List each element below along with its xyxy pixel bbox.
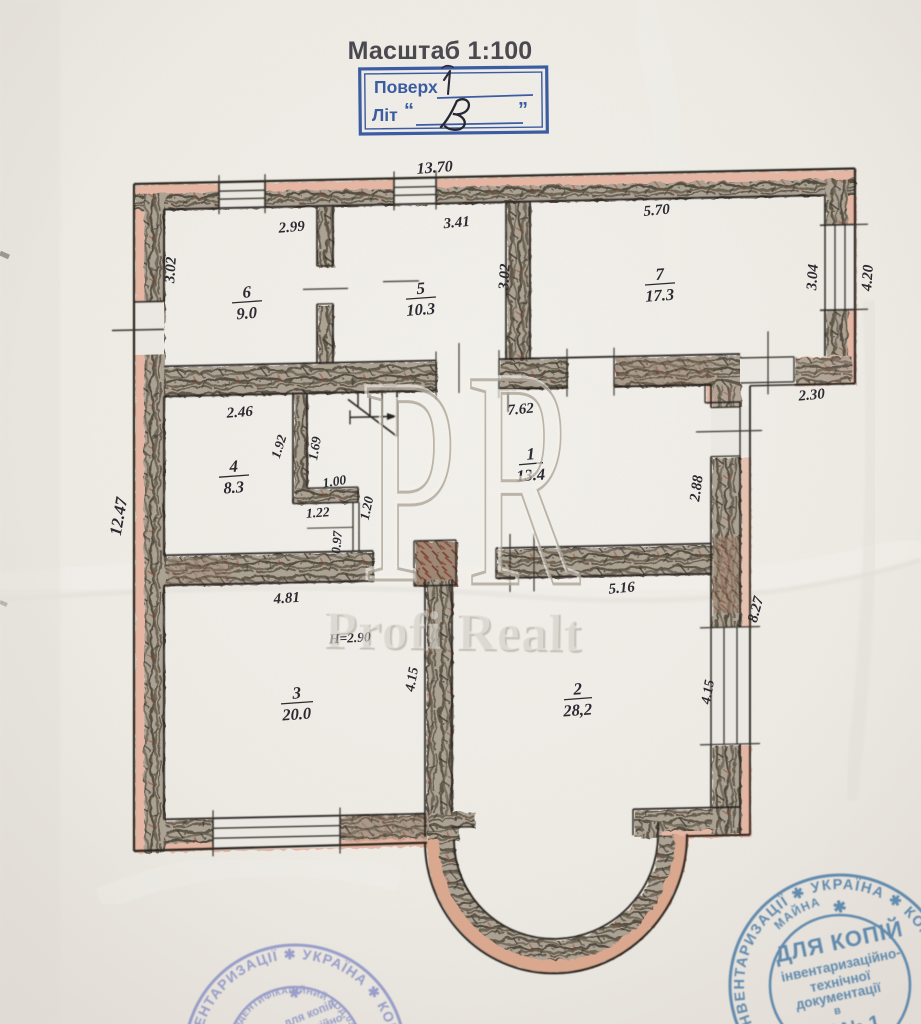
- svg-text:2.99: 2.99: [277, 218, 306, 236]
- svg-text:3.02: 3.02: [496, 263, 514, 291]
- svg-text:0.97: 0.97: [328, 530, 345, 554]
- svg-text:3.41: 3.41: [442, 214, 470, 232]
- svg-text:6: 6: [242, 282, 252, 302]
- svg-text:17.3: 17.3: [645, 285, 675, 306]
- svg-text:Літ: Літ: [372, 105, 398, 125]
- svg-text:1.22: 1.22: [306, 504, 331, 521]
- svg-text:5.70: 5.70: [643, 202, 671, 220]
- svg-text:5.16: 5.16: [608, 579, 636, 597]
- svg-text:Profi Realt: Profi Realt: [323, 599, 582, 663]
- svg-text:20.0: 20.0: [281, 703, 312, 724]
- svg-text:4.20: 4.20: [859, 264, 877, 292]
- svg-text:”: ”: [518, 99, 528, 121]
- svg-text:P: P: [363, 319, 457, 643]
- svg-text:4: 4: [228, 457, 238, 477]
- svg-text:5: 5: [416, 279, 426, 299]
- svg-text:2.30: 2.30: [797, 386, 826, 404]
- svg-text:Масштаб 1:100: Масштаб 1:100: [348, 37, 533, 65]
- svg-text:2.46: 2.46: [225, 404, 254, 422]
- svg-text:2: 2: [572, 679, 583, 699]
- svg-text:13.70: 13.70: [416, 158, 453, 178]
- svg-text:3.04: 3.04: [804, 263, 822, 291]
- svg-text:9.0: 9.0: [236, 303, 258, 323]
- svg-text:4.81: 4.81: [272, 590, 300, 608]
- svg-text:3.02: 3.02: [162, 256, 180, 284]
- svg-text:Поверх: Поверх: [374, 77, 438, 97]
- svg-text:3: 3: [291, 683, 302, 703]
- svg-text:28,2: 28,2: [562, 699, 593, 720]
- svg-text:“: “: [404, 100, 414, 122]
- svg-text:8.3: 8.3: [223, 477, 245, 497]
